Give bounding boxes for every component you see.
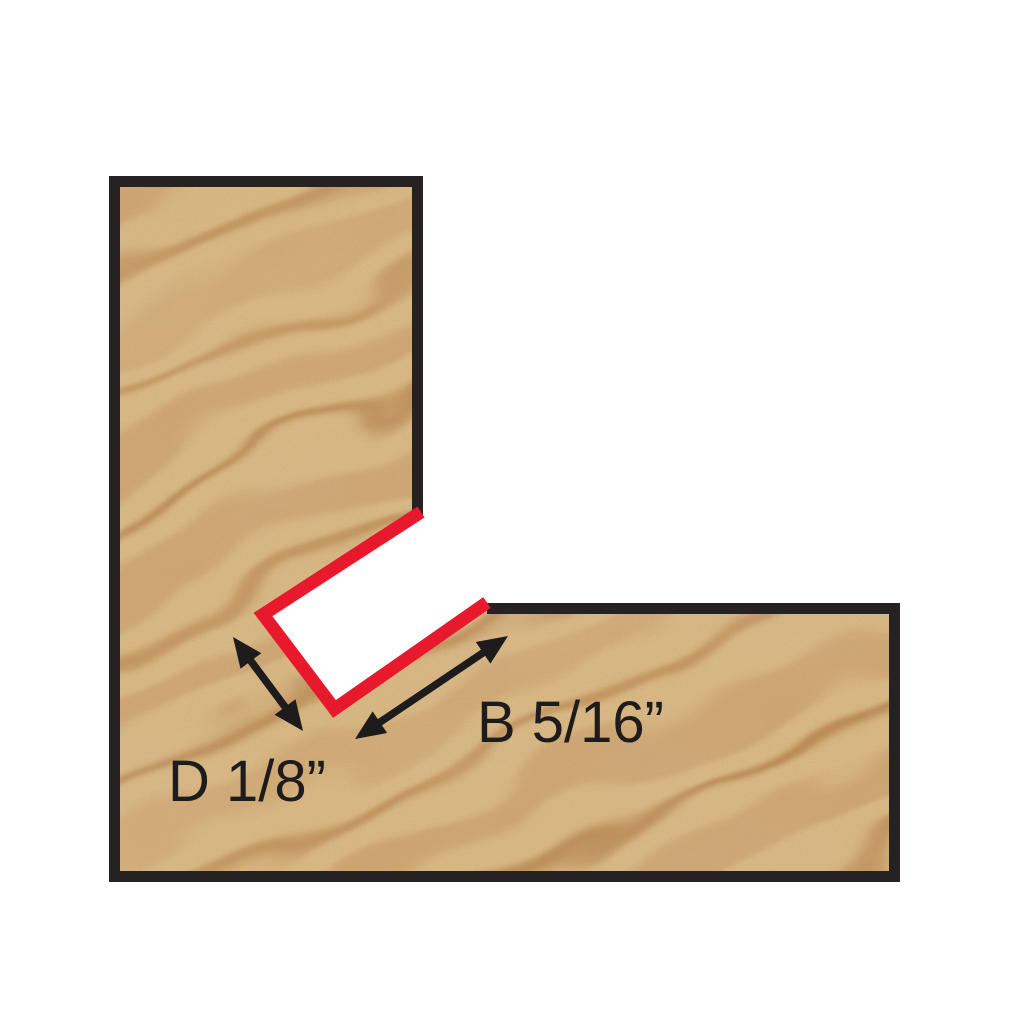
diagram-canvas: D 1/8” B 5/16” <box>0 0 1024 1024</box>
depth-dimension-label: D 1/8” <box>168 749 326 814</box>
corner-cut-profile-diagram: D 1/8” B 5/16” <box>0 0 1024 1024</box>
width-dimension-label: B 5/16” <box>477 690 664 755</box>
